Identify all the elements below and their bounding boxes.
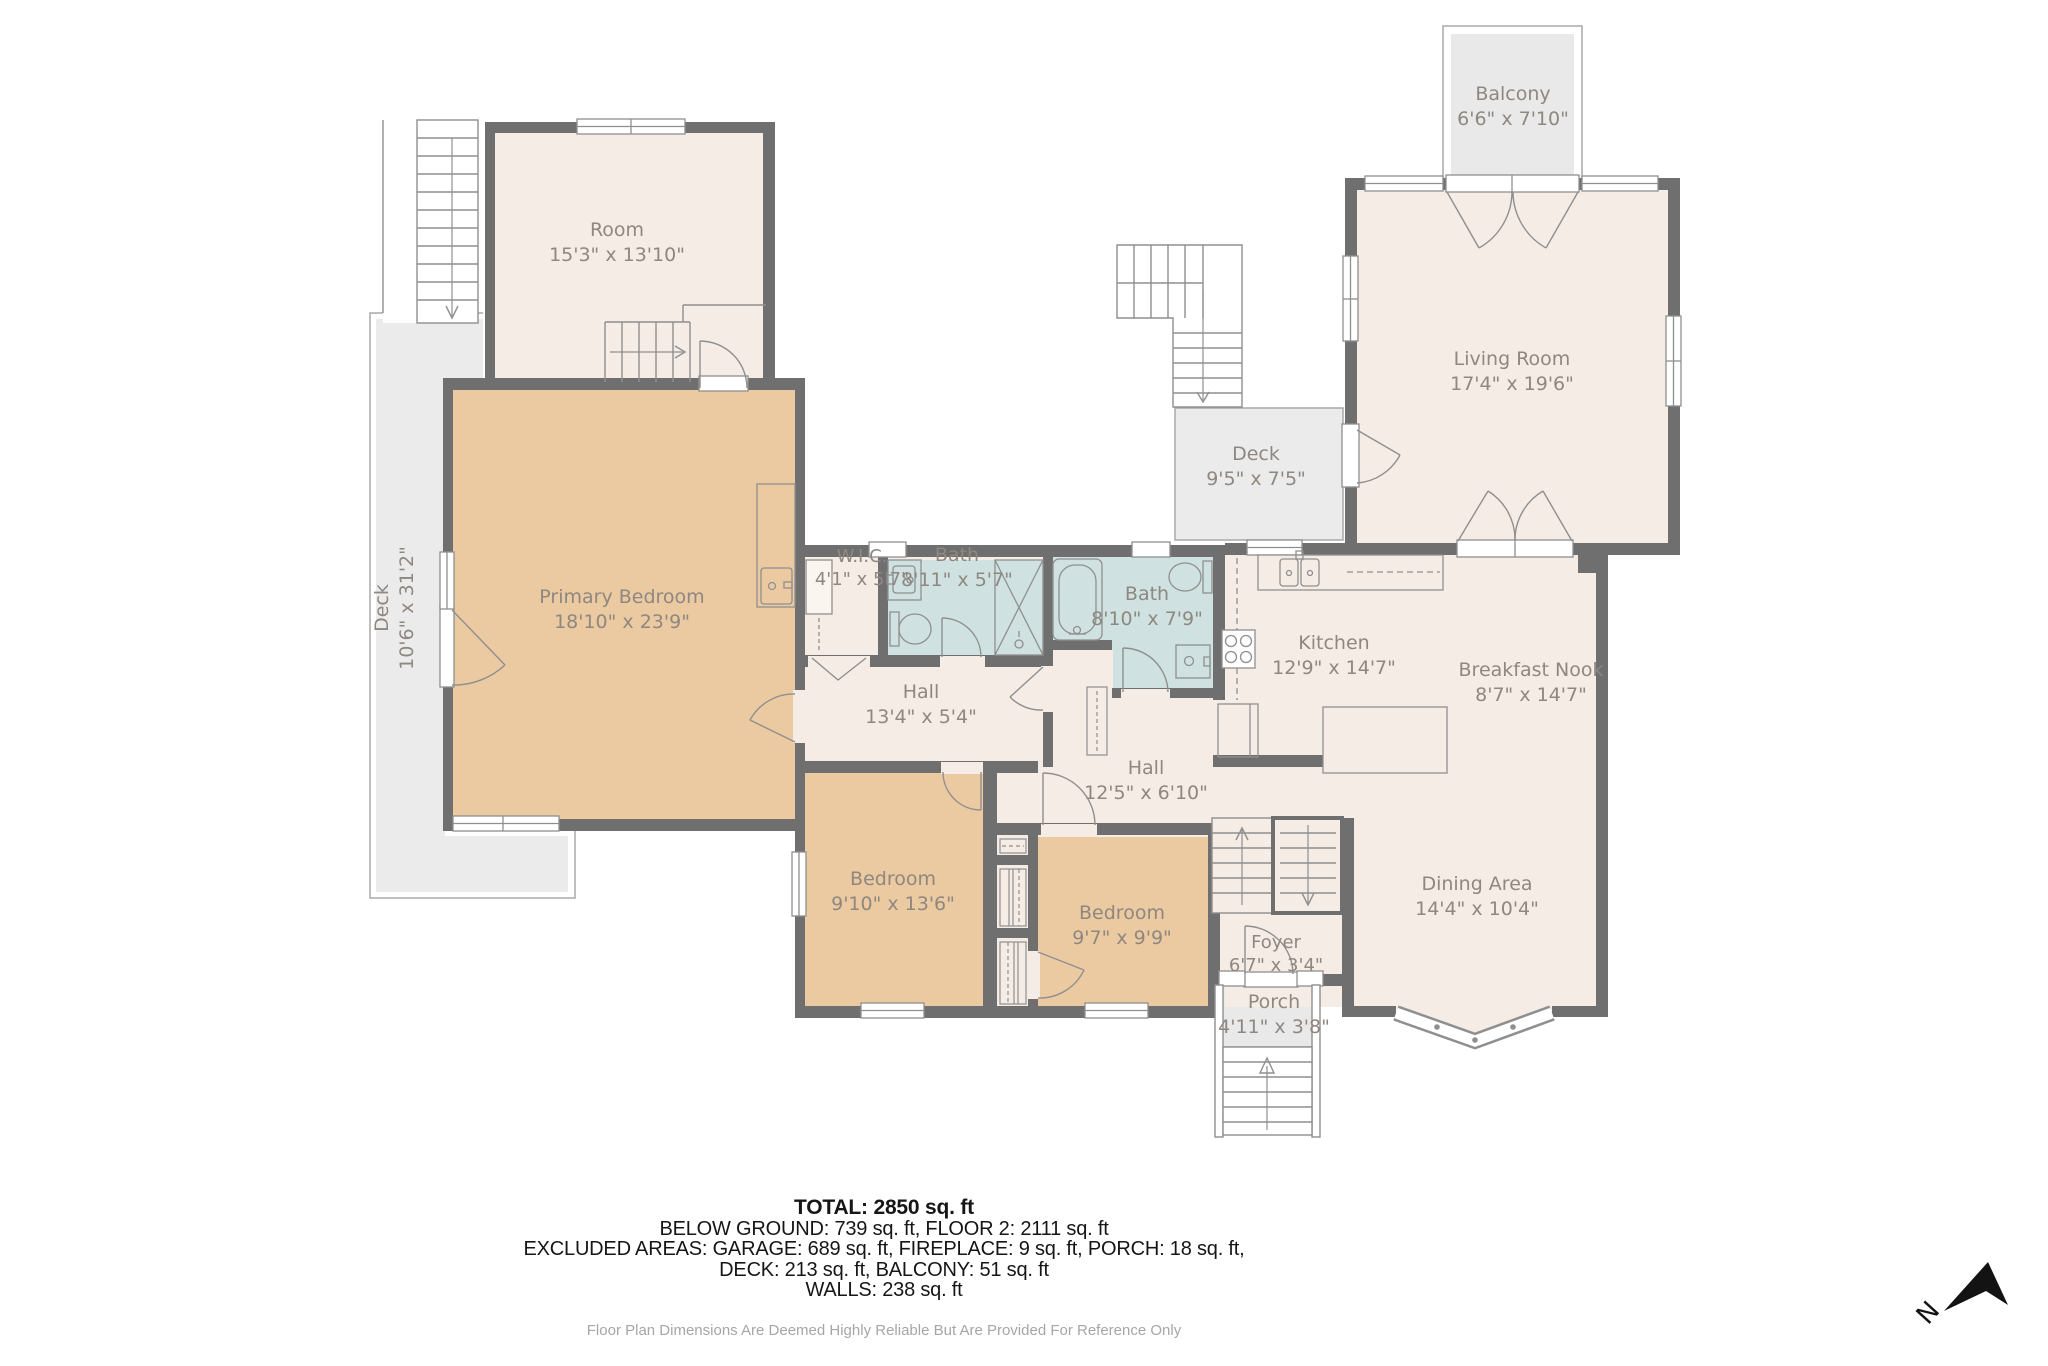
area-line-walls: WALLS: 238 sq. ft [523, 1280, 1244, 1301]
room-label-bath-2: Bath 8'10" x 7'9" [1091, 582, 1203, 632]
room-label-bath-1: Bath 8'11" x 5'7" [901, 543, 1013, 593]
stairs-top-left [383, 120, 478, 323]
room-label-breakfast-nook: Breakfast Nook 8'7" x 14'7" [1459, 658, 1604, 708]
floor-plan-page: N Room 15'3" x 13'10" Balcony 6'6" x 7'1… [0, 0, 2048, 1366]
room-label-deck-middle: Deck 9'5" x 7'5" [1206, 442, 1306, 492]
room-label-wic: W.I.C. 4'1" x 5'7" [815, 545, 909, 591]
stairs-interior-foyer [1212, 818, 1342, 913]
area-line-excluded: EXCLUDED AREAS: GARAGE: 689 sq. ft, FIRE… [523, 1239, 1244, 1260]
room-label-bedroom-1: Bedroom 9'10" x 13'6" [831, 867, 955, 917]
room-label-bedroom-2: Bedroom 9'7" x 9'9" [1072, 901, 1172, 951]
disclaimer-text: Floor Plan Dimensions Are Deemed Highly … [587, 1322, 1181, 1339]
floor-plan-canvas: N [0, 0, 2048, 1366]
room-label-balcony: Balcony 6'6" x 7'10" [1457, 82, 1569, 132]
area-line-deck-balcony: DECK: 213 sq. ft, BALCONY: 51 sq. ft [523, 1260, 1244, 1281]
room-label-foyer: Foyer 6'7" x 3'4" [1229, 931, 1323, 977]
room-label-primary-bedroom: Primary Bedroom 18'10" x 23'9" [539, 585, 704, 635]
room-label-hall-2: Hall 12'5" x 6'10" [1084, 756, 1208, 806]
room-label-deck-left: Deck 10'6" x 31'2" [370, 546, 420, 670]
room-label-room: Room 15'3" x 13'10" [549, 218, 685, 268]
room-label-living-room: Living Room 17'4" x 19'6" [1450, 347, 1574, 397]
stairs-middle-exterior [1117, 245, 1242, 407]
room-label-kitchen: Kitchen 12'9" x 14'7" [1272, 631, 1396, 681]
total-area: TOTAL: 2850 sq. ft [523, 1198, 1244, 1219]
room-label-dining-area: Dining Area 14'4" x 10'4" [1415, 872, 1539, 922]
area-summary: TOTAL: 2850 sq. ft BELOW GROUND: 739 sq.… [523, 1198, 1244, 1301]
room-label-hall-1: Hall 13'4" x 5'4" [865, 680, 977, 730]
room-label-porch: Porch 4'11" x 3'8" [1218, 990, 1330, 1040]
compass-north-arrow: N [1911, 1262, 2008, 1330]
compass-label: N [1911, 1296, 1946, 1331]
area-line-below-ground: BELOW GROUND: 739 sq. ft, FLOOR 2: 2111 … [523, 1219, 1244, 1240]
